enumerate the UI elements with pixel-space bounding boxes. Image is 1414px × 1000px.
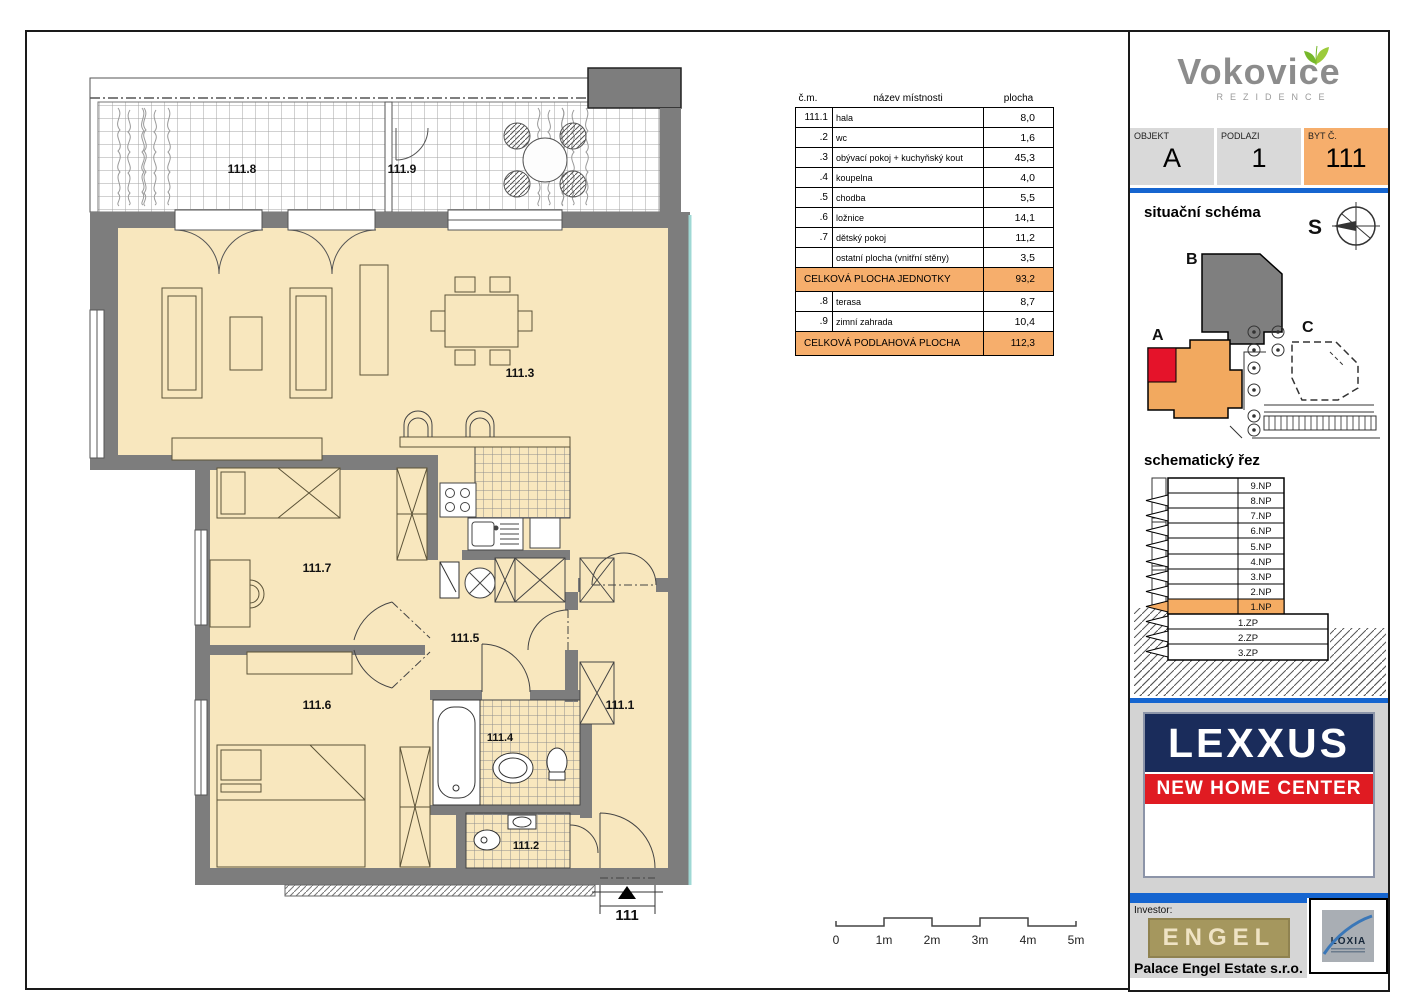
- floor-2zp: 2.ZP: [1238, 633, 1258, 644]
- row-num: [796, 248, 833, 268]
- row-area: 8,7: [984, 292, 1054, 312]
- floor-6np: 6.NP: [1250, 526, 1271, 537]
- lexxus-blank: [1145, 804, 1373, 876]
- row-area: 1,6: [984, 128, 1054, 148]
- architect-box: LOXIA: [1309, 898, 1388, 974]
- floor-3np: 3.NP: [1250, 572, 1271, 583]
- row-name: terasa: [833, 292, 984, 312]
- divider-blue: [1130, 188, 1388, 193]
- label-loznice: 111.6: [303, 698, 332, 712]
- row-name: koupelna: [833, 168, 984, 188]
- row-name: ostatní plocha (vnitřní stěny): [833, 248, 984, 268]
- row-area: 10,4: [984, 312, 1054, 332]
- building-b: [1202, 254, 1282, 344]
- lexxus-tagline: NEW HOME CENTER: [1157, 778, 1362, 800]
- entry-marker: 111: [285, 885, 663, 924]
- situation-title: situační schéma: [1144, 204, 1261, 221]
- brand-logo: Vokovice REZIDENCE: [1130, 32, 1388, 128]
- row-num: .4: [796, 168, 833, 188]
- label-hala: 111.1: [606, 698, 635, 712]
- lexxus-panel: LEXXUS NEW HOME CENTER: [1130, 698, 1388, 898]
- loxia-swoosh-icon: [1322, 910, 1374, 962]
- floor-4np: 4.NP: [1250, 557, 1271, 568]
- loxia-logo: LOXIA: [1322, 910, 1374, 962]
- lexxus-name-band: LEXXUS: [1145, 714, 1373, 772]
- floor-3zp: 3.ZP: [1238, 648, 1258, 659]
- field-objekt: OBJEKT A: [1130, 128, 1214, 185]
- row-area: 11,2: [984, 228, 1054, 248]
- objekt-value: A: [1130, 143, 1214, 174]
- label-living: 111.3: [506, 366, 535, 380]
- bathroom: [433, 700, 580, 805]
- sidebar: Vokovice REZIDENCE OBJEKT A PODLAZI 1 BY…: [1128, 30, 1390, 992]
- field-byt: BYT Č. 111: [1304, 128, 1388, 185]
- row-num: .9: [796, 312, 833, 332]
- scale-1m: 1m: [876, 933, 893, 947]
- section-title: schematický řez: [1144, 452, 1260, 469]
- floor-1np: 1.NP: [1250, 602, 1271, 613]
- engel-name: ENGEL: [1163, 924, 1276, 952]
- floor-5np: 5.NP: [1250, 542, 1271, 553]
- col-header-num: č.m.: [796, 90, 833, 108]
- row-area: 14,1: [984, 208, 1054, 228]
- col-header-area: plocha: [984, 90, 1054, 108]
- col-header-name: název místnosti: [833, 90, 984, 108]
- entry-label: 111: [615, 907, 638, 924]
- north-label: S: [1308, 216, 1322, 239]
- row-num: .8: [796, 292, 833, 312]
- table-row: .5chodba5,5: [796, 188, 1054, 208]
- floor-7np: 7.NP: [1250, 511, 1271, 522]
- total-floor-label: CELKOVÁ PODLAHOVÁ PLOCHA: [796, 332, 984, 356]
- floor-1zp: 1.ZP: [1238, 618, 1258, 629]
- row-area: 4,0: [984, 168, 1054, 188]
- floor-plan: 111 111.8 111.9 111.3 111.7 111.5 111.6 …: [60, 40, 720, 950]
- lexxus-logo: LEXXUS NEW HOME CENTER: [1143, 712, 1375, 878]
- building-c: [1292, 342, 1358, 400]
- lexxus-tagline-band: NEW HOME CENTER: [1145, 772, 1373, 804]
- room-area-table: č.m. název místnosti plocha 111.1hala8,0…: [795, 90, 1054, 356]
- investor-strip: Investor: ENGEL Palace Engel Estate s.r.…: [1130, 898, 1388, 990]
- scale-4m: 4m: [1020, 933, 1037, 947]
- floor-2np: 2.NP: [1250, 587, 1271, 598]
- site-plan: B A C: [1134, 240, 1386, 445]
- brand-name: Vokovice: [1130, 54, 1388, 90]
- row-name: chodba: [833, 188, 984, 208]
- byt-value: 111: [1304, 143, 1388, 174]
- building-b-label: B: [1186, 251, 1198, 268]
- terrace-zone: [90, 68, 681, 215]
- floor-8np: 8.NP: [1250, 496, 1271, 507]
- engel-logo: ENGEL: [1148, 918, 1290, 958]
- building-c-label: C: [1302, 319, 1314, 336]
- table-row: .3obývací pokoj + kuchyňský kout45,3: [796, 148, 1054, 168]
- building-a-label: A: [1152, 327, 1164, 344]
- cross-section: 9.NP 8.NP 7.NP 6.NP 5.NP 4.NP 3.NP 2.NP …: [1134, 470, 1386, 696]
- podlazi-label: PODLAZI: [1217, 128, 1301, 141]
- row-area: 8,0: [984, 108, 1054, 128]
- row-area: 3,5: [984, 248, 1054, 268]
- field-podlazi: PODLAZI 1: [1217, 128, 1301, 185]
- table-row: ostatní plocha (vnitřní stěny)3,5: [796, 248, 1054, 268]
- parking-strip: [1264, 416, 1376, 430]
- row-name: zimní zahrada: [833, 312, 984, 332]
- investor-label: Investor:: [1134, 905, 1303, 916]
- row-num: .5: [796, 188, 833, 208]
- row-num: .2: [796, 128, 833, 148]
- divider-blue-top: [1130, 698, 1388, 703]
- scale-5m: 5m: [1068, 933, 1085, 947]
- table-row: .8terasa8,7: [796, 292, 1054, 312]
- ground-bottom: [1134, 660, 1386, 696]
- floor-9np: 9.NP: [1250, 481, 1271, 492]
- investor-box: Investor: ENGEL Palace Engel Estate s.r.…: [1130, 898, 1307, 978]
- table-row: 111.1hala8,0: [796, 108, 1054, 128]
- byt-label: BYT Č.: [1304, 128, 1388, 141]
- row-num: .6: [796, 208, 833, 228]
- row-num: 111.1: [796, 108, 833, 128]
- lexxus-name: LEXXUS: [1168, 720, 1350, 767]
- unit-highlight: [1148, 348, 1176, 382]
- podlazi-value: 1: [1217, 143, 1301, 174]
- total-unit-area: 93,2: [984, 268, 1054, 292]
- row-name: wc: [833, 128, 984, 148]
- row-name: hala: [833, 108, 984, 128]
- investor-company: Palace Engel Estate s.r.o.: [1134, 960, 1303, 976]
- total-floor-area: 112,3: [984, 332, 1054, 356]
- scale-2m: 2m: [924, 933, 941, 947]
- row-num: .7: [796, 228, 833, 248]
- row-name: ložnice: [833, 208, 984, 228]
- label-terasa: 111.8: [228, 162, 257, 176]
- total-unit-row: CELKOVÁ PLOCHA JEDNOTKY93,2: [796, 268, 1054, 292]
- table-row: .9zimní zahrada10,4: [796, 312, 1054, 332]
- label-chodba: 111.5: [451, 631, 480, 645]
- scale-3m: 3m: [972, 933, 989, 947]
- row-name: obývací pokoj + kuchyňský kout: [833, 148, 984, 168]
- scale-0: 0: [833, 933, 840, 947]
- total-floor-row: CELKOVÁ PODLAHOVÁ PLOCHA112,3: [796, 332, 1054, 356]
- label-wc: 111.2: [513, 840, 539, 852]
- brand-subtitle: REZIDENCE: [1130, 92, 1388, 102]
- row-num: .3: [796, 148, 833, 168]
- table-row: .7dětský pokoj11,2: [796, 228, 1054, 248]
- unit-info-row: OBJEKT A PODLAZI 1 BYT Č. 111: [1130, 128, 1388, 185]
- row-name: dětský pokoj: [833, 228, 984, 248]
- table-row: .4koupelna4,0: [796, 168, 1054, 188]
- objekt-label: OBJEKT: [1130, 128, 1214, 141]
- scale-bar: 0 1m 2m 3m 4m 5m: [828, 912, 1090, 954]
- label-koupelna: 111.4: [487, 732, 514, 744]
- total-unit-label: CELKOVÁ PLOCHA JEDNOTKY: [796, 268, 984, 292]
- table-row: .2wc1,6: [796, 128, 1054, 148]
- row-area: 5,5: [984, 188, 1054, 208]
- table-row: .6ložnice14,1: [796, 208, 1054, 228]
- label-zimni: 111.9: [388, 162, 417, 176]
- row-area: 45,3: [984, 148, 1054, 168]
- label-detsky: 111.7: [303, 561, 332, 575]
- leaf-icon: [1302, 42, 1332, 66]
